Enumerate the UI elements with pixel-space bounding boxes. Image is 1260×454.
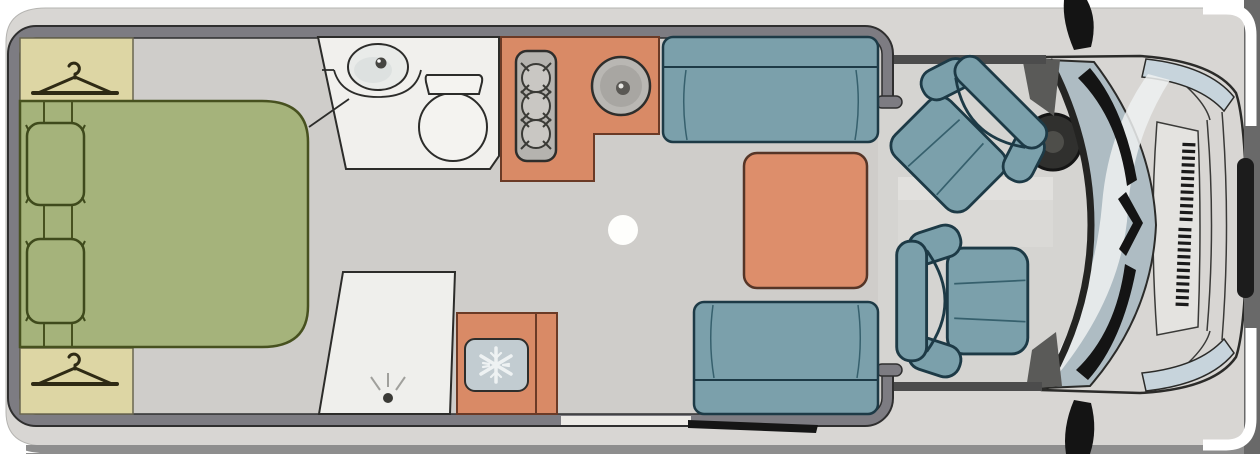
- entry-door-opening: [561, 416, 691, 425]
- washbasin-shade: [354, 57, 392, 83]
- screenshot-stage: [0, 0, 1260, 454]
- toilet-bowl: [419, 93, 487, 161]
- front-bumper: [1237, 158, 1254, 298]
- wardrobe-bottom: [20, 348, 133, 414]
- stove-burners: [521, 63, 551, 149]
- pillow-bottom: [27, 239, 84, 323]
- sofa-top: [663, 37, 878, 142]
- ceiling-light-dot: [608, 215, 638, 245]
- wall-stub-cap-bottom: [876, 364, 902, 376]
- motorhome-floor-plan: [0, 0, 1260, 454]
- pillow-top: [27, 123, 84, 205]
- washbasin-drain: [376, 58, 387, 69]
- sofa-bottom: [694, 302, 878, 414]
- dining-table: [744, 153, 867, 288]
- bottom-edge-strip: [26, 445, 1244, 454]
- shower-drain: [383, 393, 393, 403]
- shower: [319, 272, 455, 414]
- cab-wall-bottom: [890, 382, 1042, 391]
- kitchen-sink-drain: [616, 81, 630, 95]
- kitchen-sink-drain-highlight: [619, 84, 624, 89]
- wall-stub-cap-top: [876, 96, 902, 108]
- toilet-tank: [426, 75, 483, 94]
- washbasin-drain-highlight: [377, 59, 381, 63]
